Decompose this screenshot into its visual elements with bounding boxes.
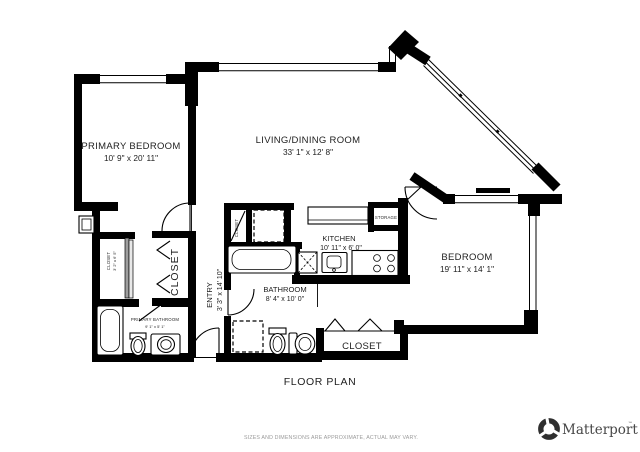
entry-label: ENTRY	[205, 282, 214, 308]
primary-bathroom-label: PRIMARY BATHROOM	[131, 317, 180, 322]
floor-plan-page: PRIMARY BEDROOM 10' 9" x 20' 11" LIVING/…	[0, 0, 640, 452]
living-dining-dims: 33' 1" x 12' 8"	[283, 147, 333, 157]
utility-closet-label: CLOSET	[234, 219, 239, 238]
bedroom-right-window	[530, 214, 537, 312]
kitchen-label: KITCHEN	[322, 234, 355, 243]
primary-closet-label: CLOSET	[106, 252, 111, 271]
bedroom-dims: 19' 11" x 14' 1"	[440, 264, 494, 274]
primary-bathtub-icon	[97, 306, 123, 355]
bathtub-icon	[228, 246, 296, 273]
bedroom-top-window	[455, 196, 518, 203]
bedroom-label: BEDROOM	[441, 252, 492, 263]
floor-plan-canvas: PRIMARY BEDROOM 10' 9" x 20' 11" LIVING/…	[0, 0, 640, 452]
sliding-door-icon	[125, 238, 133, 298]
bedroom-closet-label: CLOSET	[342, 341, 382, 352]
primary-bedroom-dims: 10' 9" x 20' 11"	[104, 153, 158, 163]
kitchen-sink-icon	[322, 253, 347, 273]
cabinet-icon	[79, 216, 94, 233]
primary-suite-door	[162, 203, 190, 231]
primary-sink-icon	[130, 333, 146, 356]
washer-dryer-icon	[254, 210, 284, 242]
kitchen-dims: 10' 11" x 6' 0"	[320, 245, 362, 252]
shower-icon	[233, 321, 263, 352]
disclaimer-text: SIZES AND DIMENSIONS ARE APPROXIMATE, AC…	[244, 435, 418, 441]
primary-closet-dims: 3' 2" x 6' 5"	[112, 251, 117, 271]
storage-label: STORAGE	[375, 215, 397, 220]
living-room-window	[218, 64, 379, 71]
living-dining-label: LIVING/DINING ROOM	[256, 135, 361, 146]
primary-bedroom-label: PRIMARY BEDROOM	[81, 141, 180, 152]
hall-closet-label: CLOSET	[169, 248, 181, 296]
storage-door	[406, 187, 421, 201]
matterport-pinwheel-icon	[540, 416, 560, 437]
matterport-wordmark: Matterport	[562, 422, 638, 438]
bathroom-sink-icon	[269, 328, 286, 355]
stove-icon	[352, 251, 398, 276]
diagonal-window	[424, 60, 539, 174]
primary-bedroom-window	[99, 76, 167, 83]
toilet-icon	[289, 333, 315, 354]
dishwasher-icon	[298, 252, 317, 273]
bathroom-door	[228, 289, 254, 315]
balcony-rail	[476, 188, 510, 193]
primary-toilet-icon	[151, 334, 180, 355]
matterport-logo: Matterport ™	[540, 416, 638, 438]
bathroom-dims: 8' 4" x 10' 0"	[266, 296, 305, 303]
bedroom-closet-bifold-icon	[324, 319, 400, 331]
kitchen-island-icon	[308, 207, 368, 224]
floor-plan-title: FLOOR PLAN	[284, 376, 357, 388]
entry-dims: 3' 3" x 14' 10"	[217, 268, 224, 311]
bathroom-label: BATHROOM	[263, 285, 306, 294]
trademark-symbol: ™	[628, 421, 633, 427]
primary-bathroom-dims: 9' 1" x 5' 1"	[145, 324, 165, 329]
